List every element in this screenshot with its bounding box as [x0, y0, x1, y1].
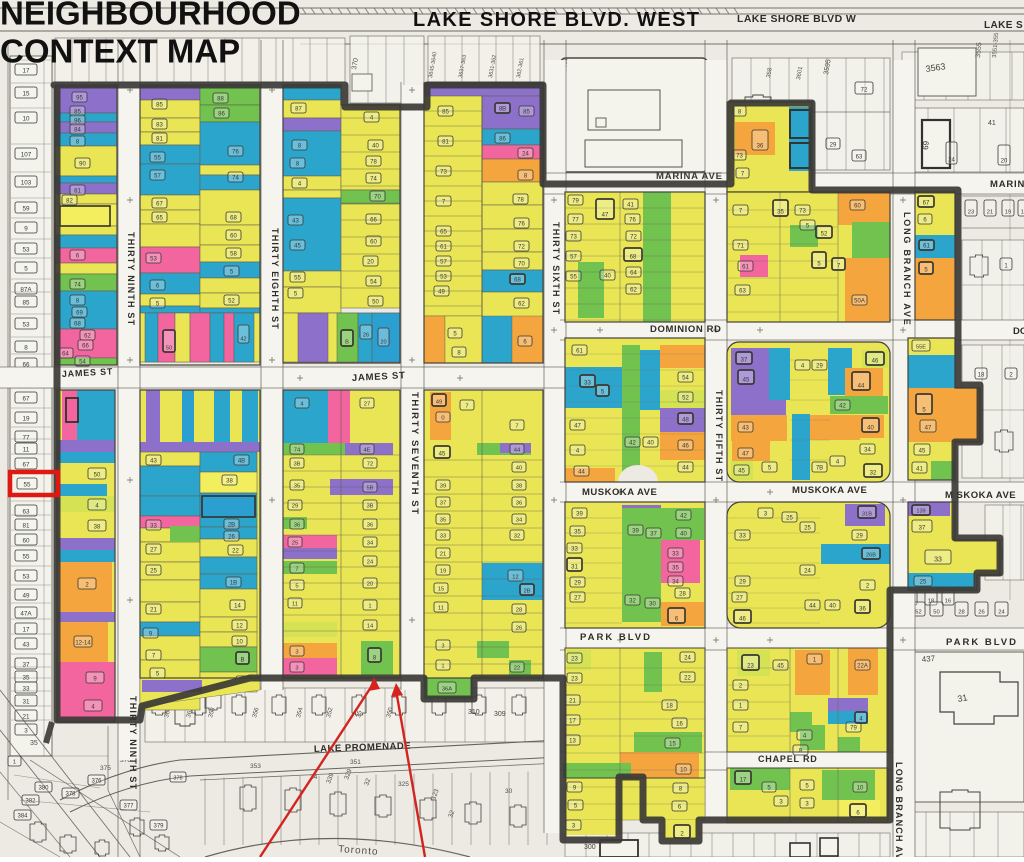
svg-text:27: 27: [574, 595, 581, 601]
svg-text:3B: 3B: [293, 461, 300, 467]
svg-text:60: 60: [854, 203, 861, 209]
svg-text:33: 33: [672, 551, 679, 557]
svg-text:52: 52: [915, 609, 921, 615]
svg-text:Toronto: Toronto: [338, 844, 379, 857]
svg-text:22: 22: [232, 548, 239, 554]
svg-text:39: 39: [440, 483, 446, 489]
svg-text:7: 7: [295, 566, 298, 572]
svg-text:39: 39: [632, 528, 639, 534]
svg-text:376: 376: [91, 778, 102, 784]
svg-text:19: 19: [1005, 209, 1011, 215]
svg-text:21: 21: [569, 698, 576, 704]
svg-text:58: 58: [230, 251, 237, 257]
svg-text:63: 63: [22, 508, 30, 515]
svg-text:14: 14: [367, 623, 374, 629]
svg-text:73: 73: [570, 234, 577, 240]
svg-text:40: 40: [604, 273, 611, 279]
svg-text:MARINA: MARINA: [990, 179, 1024, 190]
svg-text:CONTEXT MAP: CONTEXT MAP: [0, 33, 240, 70]
svg-text:63: 63: [856, 154, 863, 160]
svg-text:33: 33: [739, 533, 746, 539]
svg-text:54: 54: [682, 375, 689, 381]
svg-text:THIRTY SIXTH ST: THIRTY SIXTH ST: [551, 222, 561, 315]
svg-text:71: 71: [737, 243, 744, 249]
svg-text:11: 11: [23, 446, 30, 453]
svg-text:78: 78: [370, 159, 377, 165]
svg-text:21: 21: [987, 209, 993, 215]
svg-text:40: 40: [829, 603, 836, 609]
svg-text:38: 38: [516, 483, 522, 489]
svg-text:57: 57: [570, 254, 577, 260]
svg-text:52: 52: [821, 231, 828, 237]
svg-text:67: 67: [156, 201, 163, 207]
svg-text:7: 7: [515, 423, 518, 429]
svg-text:54: 54: [370, 279, 377, 285]
svg-text:44: 44: [514, 447, 521, 453]
svg-text:48: 48: [682, 417, 689, 423]
svg-text:81: 81: [442, 139, 449, 145]
svg-text:7: 7: [465, 403, 468, 409]
svg-text:49: 49: [436, 399, 442, 405]
svg-text:32: 32: [514, 533, 520, 539]
svg-text:3: 3: [441, 643, 444, 649]
svg-text:67: 67: [923, 200, 930, 206]
svg-text:61: 61: [923, 243, 930, 249]
svg-text:70: 70: [374, 194, 381, 200]
svg-text:MARINA AVE: MARINA AVE: [656, 171, 723, 182]
svg-text:64: 64: [630, 270, 637, 276]
svg-text:76: 76: [629, 217, 636, 223]
svg-text:87A: 87A: [20, 286, 32, 293]
svg-text:3555: 3555: [975, 42, 983, 58]
svg-text:24: 24: [804, 568, 811, 574]
svg-text:60: 60: [22, 537, 30, 544]
svg-text:28: 28: [958, 609, 964, 615]
svg-text:35: 35: [294, 483, 300, 489]
svg-text:72: 72: [367, 461, 373, 467]
svg-text:7B: 7B: [816, 465, 823, 471]
svg-text:52: 52: [228, 298, 235, 304]
svg-text:27: 27: [736, 595, 743, 601]
svg-text:73: 73: [799, 208, 806, 214]
svg-text:12-14: 12-14: [75, 640, 91, 646]
svg-text:40: 40: [647, 440, 654, 446]
svg-text:15: 15: [438, 586, 444, 592]
svg-text:1: 1: [441, 663, 444, 669]
svg-text:35: 35: [440, 517, 446, 523]
svg-text:79: 79: [572, 198, 579, 204]
svg-text:23: 23: [747, 663, 754, 669]
svg-text:9: 9: [24, 225, 28, 232]
svg-text:13: 13: [569, 738, 576, 744]
svg-text:62: 62: [630, 287, 637, 293]
svg-text:59: 59: [22, 205, 30, 212]
svg-text:49: 49: [438, 289, 445, 295]
svg-text:64: 64: [62, 351, 69, 357]
svg-text:325: 325: [398, 781, 409, 788]
svg-text:52: 52: [682, 395, 689, 401]
svg-text:33: 33: [22, 685, 30, 692]
svg-text:31: 31: [957, 692, 969, 704]
svg-text:69: 69: [76, 310, 83, 316]
svg-text:378: 378: [65, 791, 76, 797]
svg-text:THIRTY FIFTH ST: THIRTY FIFTH ST: [714, 390, 724, 482]
svg-text:37: 37: [650, 531, 657, 537]
svg-text:22: 22: [684, 675, 691, 681]
svg-text:33: 33: [440, 533, 446, 539]
svg-text:CHAPEL RD: CHAPEL RD: [758, 754, 818, 764]
svg-text:68: 68: [230, 215, 237, 221]
svg-text:32: 32: [870, 470, 877, 476]
svg-text:351: 351: [350, 759, 361, 766]
svg-text:21: 21: [150, 607, 157, 613]
svg-text:68: 68: [514, 277, 521, 283]
svg-text:22A: 22A: [857, 663, 868, 669]
svg-text:62: 62: [84, 333, 91, 339]
svg-text:36: 36: [367, 522, 373, 528]
svg-text:66: 66: [82, 343, 89, 349]
svg-text:4B: 4B: [238, 458, 245, 464]
svg-text:31B: 31B: [862, 511, 872, 517]
svg-text:55: 55: [570, 274, 577, 280]
svg-text:5: 5: [24, 265, 28, 272]
svg-text:85: 85: [74, 109, 81, 115]
svg-text:60: 60: [370, 239, 377, 245]
svg-text:55E: 55E: [916, 344, 926, 350]
svg-text:36A: 36A: [442, 686, 452, 692]
svg-text:20: 20: [1001, 158, 1008, 164]
svg-text:4E: 4E: [363, 447, 370, 453]
svg-text:26: 26: [363, 332, 369, 338]
svg-text:61: 61: [440, 244, 447, 250]
svg-text:44: 44: [809, 603, 816, 609]
svg-text:3B: 3B: [366, 503, 373, 509]
svg-text:62: 62: [518, 301, 525, 307]
svg-text:50: 50: [933, 609, 939, 615]
svg-text:17: 17: [740, 777, 747, 783]
svg-text:DO: DO: [1013, 326, 1024, 337]
svg-text:86: 86: [218, 111, 225, 117]
svg-text:70: 70: [518, 261, 525, 267]
svg-text:379: 379: [153, 823, 164, 829]
svg-text:12: 12: [236, 623, 243, 629]
svg-text:84: 84: [74, 127, 81, 133]
svg-text:26: 26: [228, 534, 235, 540]
svg-text:67: 67: [22, 461, 30, 468]
svg-text:15: 15: [669, 741, 676, 747]
svg-text:88: 88: [217, 96, 224, 102]
svg-text:M SKOKA AVE: M SKOKA AVE: [945, 490, 1016, 501]
svg-text:384: 384: [17, 813, 28, 819]
svg-text:45: 45: [294, 243, 301, 249]
svg-text:37: 37: [741, 357, 748, 363]
svg-text:44: 44: [682, 465, 689, 471]
svg-text:45: 45: [439, 451, 446, 457]
svg-text:MUSKOKA AVE: MUSKOKA AVE: [582, 487, 657, 498]
svg-text:3: 3: [24, 727, 28, 734]
svg-text:35: 35: [574, 529, 581, 535]
svg-text:30: 30: [505, 788, 513, 795]
svg-text:44: 44: [858, 383, 865, 389]
svg-text:1: 1: [13, 759, 16, 765]
svg-text:10: 10: [680, 767, 687, 773]
svg-text:68: 68: [630, 254, 637, 260]
svg-text:LAKE SHORE BLVD W: LAKE SHORE BLVD W: [737, 13, 856, 25]
svg-text:73: 73: [440, 169, 447, 175]
svg-text:85: 85: [22, 299, 30, 306]
svg-text:31: 31: [571, 564, 578, 570]
svg-text:38: 38: [226, 478, 233, 484]
svg-text:34: 34: [864, 447, 871, 453]
svg-text:33: 33: [584, 380, 591, 386]
svg-text:THIRTY NINTH ST: THIRTY NINTH ST: [128, 696, 138, 790]
svg-text:103: 103: [21, 179, 32, 186]
svg-text:61: 61: [576, 348, 583, 354]
svg-text:39: 39: [576, 511, 583, 517]
svg-text:55: 55: [294, 275, 301, 281]
svg-text:81: 81: [22, 522, 30, 529]
svg-text:29: 29: [816, 363, 823, 369]
svg-text:22: 22: [514, 665, 520, 671]
svg-text:27: 27: [364, 401, 370, 407]
svg-text:74: 74: [294, 447, 301, 453]
svg-text:43: 43: [742, 425, 749, 431]
svg-text:21: 21: [440, 551, 446, 557]
svg-text:25: 25: [786, 515, 793, 521]
svg-text:45: 45: [738, 468, 745, 474]
svg-text:10: 10: [236, 639, 243, 645]
svg-text:14: 14: [234, 603, 241, 609]
svg-text:46: 46: [872, 358, 879, 364]
svg-text:42: 42: [839, 403, 846, 409]
svg-text:380: 380: [38, 785, 49, 791]
svg-text:46: 46: [682, 443, 689, 449]
svg-text:23: 23: [571, 676, 578, 682]
svg-text:28: 28: [516, 607, 522, 613]
svg-text:49: 49: [22, 592, 30, 599]
svg-text:25: 25: [292, 540, 298, 546]
svg-text:76: 76: [518, 221, 525, 227]
svg-text:24: 24: [998, 609, 1005, 615]
svg-text:35: 35: [30, 740, 38, 747]
svg-text:61: 61: [742, 264, 749, 270]
svg-text:66: 66: [370, 217, 377, 223]
svg-text:53: 53: [440, 274, 447, 280]
svg-text:40: 40: [372, 143, 379, 149]
svg-text:81: 81: [156, 136, 163, 142]
svg-text:18: 18: [978, 372, 985, 378]
svg-text:57: 57: [154, 173, 161, 179]
svg-text:26: 26: [978, 609, 984, 615]
svg-text:20: 20: [367, 259, 374, 265]
svg-text:53: 53: [22, 321, 30, 328]
svg-text:36: 36: [294, 522, 300, 528]
svg-text:25: 25: [920, 579, 927, 585]
svg-text:41: 41: [916, 466, 923, 472]
svg-text:THIRTY SEVENTH ST: THIRTY SEVENTH ST: [409, 392, 420, 516]
svg-text:74: 74: [232, 175, 239, 181]
svg-text:24: 24: [522, 151, 529, 157]
svg-text:17: 17: [22, 626, 30, 633]
svg-text:36: 36: [859, 606, 866, 612]
svg-text:47: 47: [602, 212, 609, 218]
svg-text:81: 81: [74, 188, 81, 194]
svg-text:41: 41: [988, 120, 996, 127]
svg-text:77: 77: [572, 217, 579, 223]
svg-text:85: 85: [442, 109, 449, 115]
svg-text:107: 107: [21, 151, 32, 158]
svg-text:78: 78: [517, 197, 524, 203]
svg-text:41: 41: [627, 202, 634, 208]
svg-text:85: 85: [523, 109, 530, 115]
svg-text:16: 16: [945, 598, 951, 604]
svg-text:2B: 2B: [228, 522, 235, 528]
svg-text:53: 53: [22, 246, 30, 253]
svg-text:19: 19: [22, 415, 30, 422]
svg-text:1B: 1B: [230, 580, 237, 586]
svg-text:69: 69: [921, 140, 931, 150]
svg-text:86: 86: [499, 136, 506, 142]
svg-text:34: 34: [516, 517, 523, 523]
svg-text:139: 139: [916, 508, 925, 514]
svg-text:10: 10: [22, 115, 30, 122]
svg-text:82: 82: [66, 198, 73, 204]
svg-text:32: 32: [629, 598, 636, 604]
svg-text:30: 30: [649, 601, 656, 607]
svg-text:17: 17: [569, 718, 576, 724]
svg-text:53: 53: [150, 256, 157, 262]
svg-text:43: 43: [22, 641, 30, 648]
svg-text:72: 72: [518, 244, 525, 250]
svg-text:B: B: [345, 339, 349, 345]
svg-text:47: 47: [925, 425, 932, 431]
svg-text:12: 12: [512, 574, 518, 580]
svg-text:375: 375: [100, 765, 111, 772]
svg-text:11: 11: [438, 605, 444, 611]
svg-text:437: 437: [921, 654, 936, 664]
svg-text:45: 45: [777, 663, 784, 669]
svg-text:29: 29: [739, 579, 746, 585]
svg-text:18: 18: [666, 703, 673, 709]
svg-text:26B: 26B: [866, 552, 876, 558]
svg-text:50: 50: [166, 345, 172, 351]
svg-text:29: 29: [830, 142, 837, 148]
svg-text:40: 40: [680, 531, 687, 537]
svg-text:PARK BLVD: PARK BLVD: [580, 632, 652, 643]
svg-text:20: 20: [380, 339, 386, 345]
svg-text:50: 50: [94, 472, 101, 478]
svg-text:34: 34: [672, 579, 679, 585]
svg-text:37: 37: [440, 500, 446, 506]
svg-text:377: 377: [123, 803, 134, 809]
svg-text:42: 42: [629, 440, 636, 446]
svg-text:72: 72: [861, 87, 868, 93]
svg-text:LONG BRANCH AVE: LONG BRANCH AVE: [902, 212, 912, 327]
svg-text:42: 42: [680, 513, 687, 519]
svg-text:38: 38: [94, 524, 101, 530]
svg-text:24: 24: [684, 655, 691, 661]
svg-text:46: 46: [739, 616, 746, 622]
svg-text:20: 20: [367, 581, 373, 587]
svg-text:60: 60: [230, 233, 237, 239]
svg-text:310: 310: [468, 709, 480, 716]
svg-text:8B: 8B: [499, 106, 506, 112]
svg-text:68: 68: [74, 321, 81, 327]
svg-text:27: 27: [150, 547, 157, 553]
svg-text:87: 87: [295, 106, 302, 112]
svg-text:23: 23: [571, 656, 578, 662]
svg-text:LONG BRANCH AVE: LONG BRANCH AVE: [894, 762, 904, 857]
svg-text:44: 44: [578, 469, 585, 475]
svg-text:5: 5: [295, 583, 298, 589]
svg-text:85: 85: [156, 102, 163, 108]
svg-text:MUSKOKA AVE: MUSKOKA AVE: [792, 485, 867, 496]
svg-text:45: 45: [743, 377, 750, 383]
svg-text:THIRTY NINTH ST: THIRTY NINTH ST: [126, 232, 136, 326]
svg-text:77: 77: [22, 434, 30, 441]
svg-text:B: B: [240, 657, 244, 663]
svg-text:25: 25: [150, 568, 157, 574]
svg-text:15: 15: [22, 90, 30, 97]
svg-text:3: 3: [295, 649, 298, 655]
svg-text:47A: 47A: [20, 610, 32, 617]
svg-text:29: 29: [292, 503, 298, 509]
svg-text:8: 8: [24, 344, 28, 351]
svg-text:40: 40: [867, 425, 874, 431]
svg-text:25: 25: [804, 525, 811, 531]
svg-text:16: 16: [676, 721, 683, 727]
svg-text:47: 47: [742, 451, 749, 457]
svg-text:50A: 50A: [854, 298, 865, 304]
svg-text:29: 29: [574, 580, 581, 586]
svg-text:300: 300: [584, 844, 596, 851]
svg-text:73: 73: [736, 153, 743, 159]
svg-text:45: 45: [919, 448, 926, 454]
svg-text:37: 37: [919, 525, 926, 531]
svg-text:57: 57: [440, 259, 447, 265]
svg-text:34: 34: [367, 540, 374, 546]
svg-text:28: 28: [679, 591, 686, 597]
svg-text:33: 33: [150, 523, 157, 529]
svg-text:90: 90: [79, 161, 86, 167]
svg-text:LAKE S: LAKE S: [984, 20, 1023, 31]
svg-text:53: 53: [22, 573, 30, 580]
svg-text:55: 55: [22, 553, 30, 560]
svg-text:55: 55: [23, 481, 31, 488]
svg-text:67: 67: [22, 395, 30, 402]
svg-text:35: 35: [672, 565, 679, 571]
svg-text:10: 10: [857, 785, 864, 791]
svg-text:42: 42: [240, 336, 246, 342]
svg-text:55: 55: [154, 155, 161, 161]
svg-text:NEIGHBOURHOOD: NEIGHBOURHOOD: [0, 0, 301, 32]
svg-text:33: 33: [934, 556, 942, 563]
svg-text:43: 43: [292, 218, 299, 224]
svg-text:353: 353: [250, 763, 261, 770]
svg-text:DOMINION RD: DOMINION RD: [650, 324, 722, 335]
svg-text:79: 79: [850, 725, 857, 731]
svg-text:43: 43: [150, 458, 157, 464]
svg-text:24: 24: [367, 559, 374, 565]
svg-text:63: 63: [739, 288, 746, 294]
svg-text:33: 33: [571, 546, 578, 552]
svg-text:5B: 5B: [366, 485, 373, 491]
svg-text:1: 1: [368, 603, 371, 609]
svg-text:31: 31: [22, 698, 30, 705]
svg-text:76: 76: [232, 149, 239, 155]
svg-text:40: 40: [516, 465, 522, 471]
svg-text:74: 74: [370, 176, 377, 182]
